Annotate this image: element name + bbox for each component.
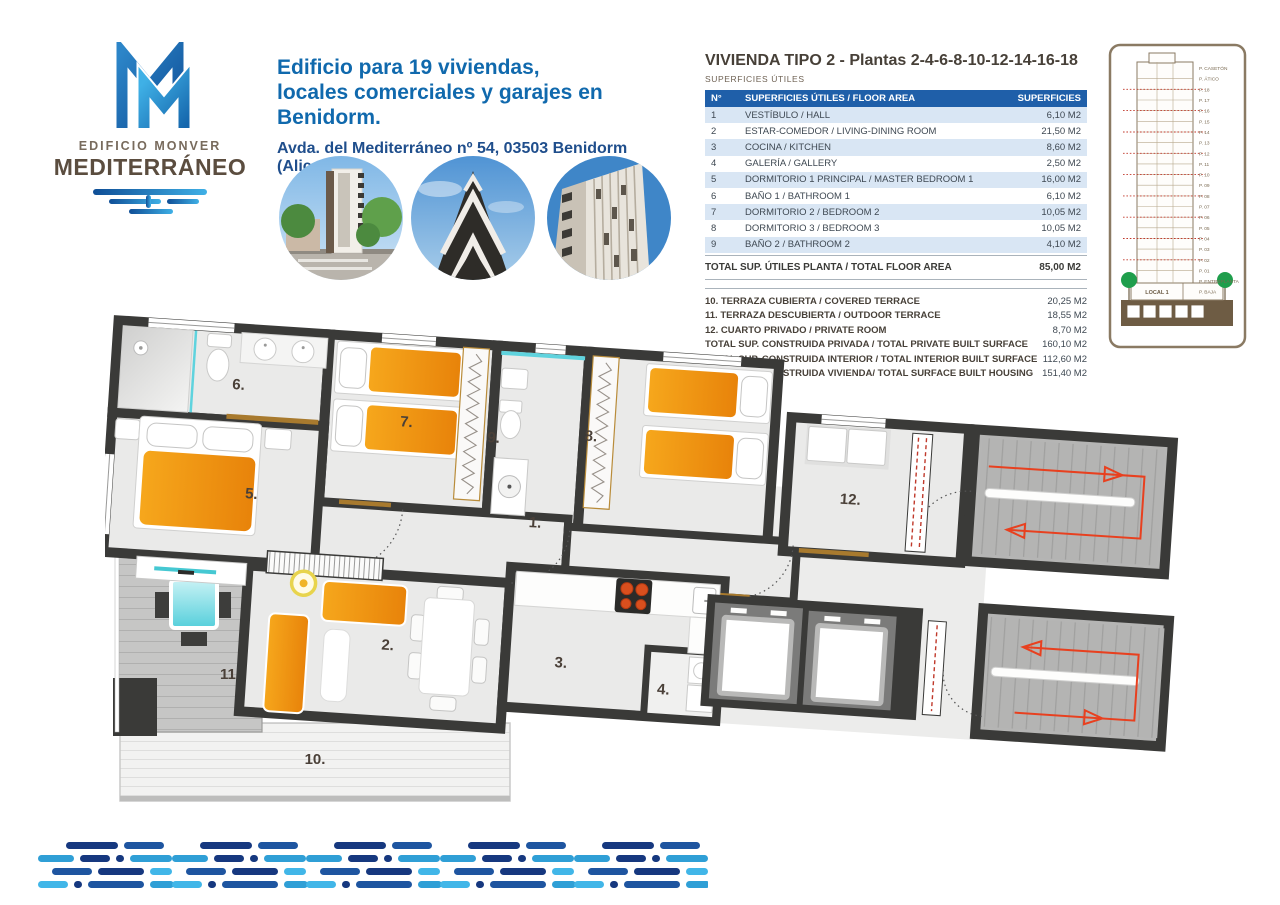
floor-label: P. CASETÓN (1199, 65, 1228, 72)
room-label-10: 10. (305, 751, 326, 768)
floor-label: P. 17 (1199, 98, 1210, 104)
row-area: 2,50 M2 (997, 156, 1087, 172)
room-label-5: 5. (245, 485, 259, 503)
table-row: 6BAÑO 1 / BATHROOM 16,10 M2 (705, 188, 1087, 204)
row-name: GALERÍA / GALLERY (739, 156, 997, 172)
floor-label: P. 18 (1199, 87, 1210, 93)
row-name: DORMITORIO 1 PRINCIPAL / MASTER BEDROOM … (739, 172, 997, 188)
building-photo-street (278, 155, 404, 281)
row-name: DORMITORIO 2 / BEDROOM 2 (739, 204, 997, 220)
row-num: 1 (705, 107, 739, 123)
monver-m-logo-icon (84, 42, 216, 130)
table-row: 8DORMITORIO 3 / BEDROOM 310,05 M2 (705, 220, 1087, 236)
headline-line2: locales comerciales y garajes en Benidor… (277, 80, 697, 130)
row-num: 5 (705, 172, 739, 188)
floor-label: P. ENTREPLANTA (1199, 279, 1240, 285)
row-area: 21,50 M2 (997, 123, 1087, 139)
row-area: 6,10 M2 (997, 188, 1087, 204)
room12-bed (805, 424, 891, 469)
row-area: 8,60 M2 (997, 139, 1087, 155)
section-caseton (1149, 53, 1175, 63)
building-photo-corner (410, 155, 536, 281)
room-label-3: 3. (554, 654, 568, 672)
row-area: 4,10 M2 (997, 237, 1087, 253)
row-num: 7 (705, 204, 739, 220)
floor-label: P. 06 (1199, 215, 1210, 221)
table-row: 1VESTÍBULO / HALL6,10 M2 (705, 107, 1087, 123)
row-area: 16,00 M2 (997, 172, 1087, 188)
row-num: 2 (705, 123, 739, 139)
row-name: BAÑO 1 / BATHROOM 1 (739, 188, 997, 204)
spec-title: VIVIENDA TIPO 2 - Plantas 2-4-6-8-10-12-… (705, 52, 1087, 70)
building-photo-facade (546, 155, 672, 281)
row-num: 6 (705, 188, 739, 204)
table-row: 3COCINA / KITCHEN8,60 M2 (705, 139, 1087, 155)
sofa-chaise (263, 613, 309, 713)
section-tower (1137, 62, 1193, 283)
table-row: 7DORMITORIO 2 / BEDROOM 210,05 M2 (705, 204, 1087, 220)
floor-plan: 11. 10. (105, 300, 1180, 815)
room-label-6: 6. (232, 376, 246, 394)
col-num: N° (705, 90, 739, 107)
row-num: 9 (705, 237, 739, 253)
elevators (700, 594, 923, 720)
areas-table: N° SUPERFICIES ÚTILES / FLOOR AREA SUPER… (705, 90, 1087, 253)
floor-label: P. 16 (1199, 109, 1210, 115)
spec-title-main: VIVIENDA TIPO 2 (705, 52, 835, 69)
floor-label: P. 13 (1199, 141, 1210, 147)
floor-label: P. BAJA (1199, 290, 1217, 296)
room-label-9: 9. (487, 429, 501, 447)
room-label-4: 4. (656, 681, 670, 699)
room-label-12: 12. (839, 491, 861, 509)
floor-label: P. 02 (1199, 258, 1210, 264)
room-label-2: 2. (381, 637, 395, 655)
table-row: 5DORMITORIO 1 PRINCIPAL / MASTER BEDROOM… (705, 172, 1087, 188)
floor-label: P. 10 (1199, 173, 1210, 179)
headline-line1: Edificio para 19 viviendas, (277, 55, 697, 80)
row-name: VESTÍBULO / HALL (739, 107, 997, 123)
stairs-upper (975, 438, 1164, 566)
row-name: BAÑO 2 / BATHROOM 2 (739, 237, 997, 253)
col-name: SUPERFICIES ÚTILES / FLOOR AREA (739, 90, 997, 107)
wave-decoration (38, 836, 708, 900)
row-name: DORMITORIO 3 / BEDROOM 3 (739, 220, 997, 236)
row-name: COCINA / KITCHEN (739, 139, 997, 155)
table-row: 4GALERÍA / GALLERY2,50 M2 (705, 156, 1087, 172)
spec-title-suffix: - Plantas 2-4-6-8-10-12-14-16-18 (835, 52, 1078, 69)
terrace-wall-block (113, 678, 157, 736)
row-area: 6,10 M2 (997, 107, 1087, 123)
floor-label: P. 05 (1199, 226, 1210, 232)
local-label: LOCAL 1 (1145, 290, 1168, 296)
row-area: 10,05 M2 (997, 204, 1087, 220)
total-value: 85,00 M2 (1039, 262, 1081, 273)
stairs-lower (984, 617, 1165, 738)
row-num: 4 (705, 156, 739, 172)
total-label: TOTAL SUP. ÚTILES PLANTA / TOTAL FLOOR A… (705, 262, 952, 273)
total-floor-area-row: TOTAL SUP. ÚTILES PLANTA / TOTAL FLOOR A… (705, 255, 1087, 280)
table-row: 2ESTAR-COMEDOR / LIVING-DINING ROOM21,50… (705, 123, 1087, 139)
floor-label: P. 01 (1199, 268, 1210, 274)
brand-line2: MEDITERRÁNEO (52, 154, 248, 181)
row-num: 8 (705, 220, 739, 236)
room-label-7: 7. (400, 413, 414, 431)
brand-line1: EDIFICIO MONVER (52, 139, 248, 153)
floor-label: P. 08 (1199, 194, 1210, 200)
apartment-plan: 6. 7. 9. 8. 5. 1. 12. 2. 3. 4. (105, 316, 1180, 773)
table-row: 9BAÑO 2 / BATHROOM 24,10 M2 (705, 237, 1087, 253)
row-num: 3 (705, 139, 739, 155)
floor-label: P. 07 (1199, 205, 1210, 211)
floor-label: P. 15 (1199, 119, 1210, 125)
coffee-table (320, 629, 351, 703)
areas-header-row: N° SUPERFICIES ÚTILES / FLOOR AREA SUPER… (705, 90, 1087, 107)
room-label-1: 1. (528, 514, 542, 532)
floor-label: P. 04 (1199, 237, 1210, 243)
elevator-cab (719, 617, 792, 697)
sofa (321, 581, 407, 626)
floor-label: P. 14 (1199, 130, 1210, 136)
logo-wave-icon (75, 187, 225, 221)
elevator-cab (813, 625, 886, 703)
floor-label: P. 03 (1199, 247, 1210, 253)
row-name: ESTAR-COMEDOR / LIVING-DINING ROOM (739, 123, 997, 139)
spec-subtitle: SUPERFICIES ÚTILES (705, 74, 1087, 84)
hob (614, 578, 652, 614)
row-area: 10,05 M2 (997, 220, 1087, 236)
brand-logo: EDIFICIO MONVER MEDITERRÁNEO (52, 42, 248, 226)
floor-label: P. 11 (1199, 162, 1210, 168)
col-area: SUPERFICIES (997, 90, 1087, 107)
room-label-8: 8. (584, 428, 598, 446)
floor-label: P. ÁTICO (1199, 76, 1219, 83)
floor-label: P. 09 (1199, 183, 1210, 189)
floor-label: P. 12 (1199, 151, 1210, 157)
